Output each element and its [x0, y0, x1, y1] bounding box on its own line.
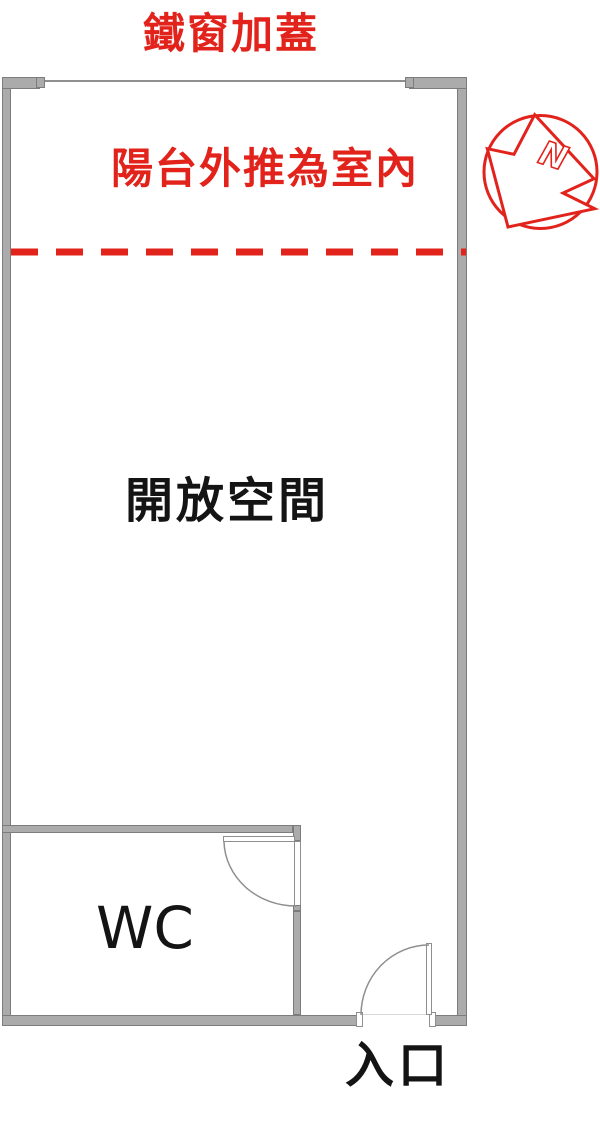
entrance-label: 入口: [328, 1042, 468, 1091]
balcony-annotation-label: 陽台外推為室內: [85, 148, 445, 190]
wc-wall-right: [293, 911, 301, 1015]
wall-right: [457, 77, 467, 1026]
compass-n-label: N: [534, 133, 572, 179]
wall-top-left-segment: [2, 77, 40, 89]
north-compass-icon: N: [484, 115, 597, 229]
wall-left: [2, 77, 11, 1026]
entrance-threshold-line: [363, 1014, 429, 1015]
entrance-frame-left: [356, 1012, 363, 1027]
wc-door-leaf: [223, 836, 295, 842]
north-arrow: [487, 115, 594, 227]
floor-plan: 鐵窗加蓋 陽台外推為室內 開放空間 WC 入口 N: [0, 0, 600, 1129]
compass-circle: [484, 116, 597, 229]
entrance-door-swing-arc: [361, 945, 429, 1015]
entrance-door-leaf: [426, 943, 432, 1015]
wall-bottom-left-segment: [2, 1015, 358, 1026]
open-space-label: 開放空間: [77, 478, 377, 526]
wc-label: WC: [96, 899, 194, 957]
wc-door-swing-arc: [224, 842, 296, 906]
window-top: [44, 80, 406, 82]
window-cap-left: [36, 77, 45, 88]
wc-wall-top: [2, 825, 293, 833]
wall-bottom-right-segment: [435, 1015, 467, 1026]
top-annotation-label: 鐵窗加蓋: [101, 13, 361, 55]
wc-doorway-opening: [294, 841, 301, 906]
window-cap-right: [405, 77, 414, 88]
wall-top-right-segment: [409, 77, 467, 89]
